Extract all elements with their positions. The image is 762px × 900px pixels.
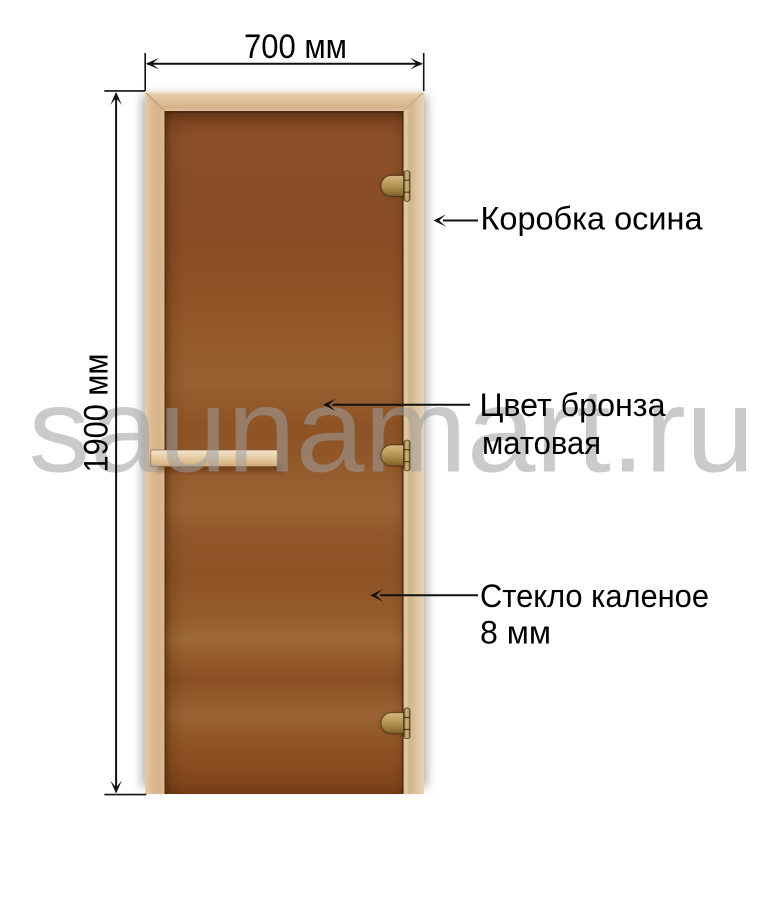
svg-text:8 мм: 8 мм [480,614,551,650]
svg-text:Стекло каленое: Стекло каленое [480,578,709,614]
svg-text:Коробка осина: Коробка осина [481,201,703,237]
svg-text:Цвет бронза: Цвет бронза [480,387,666,423]
svg-text:1900 мм: 1900 мм [78,354,116,473]
svg-text:700 мм: 700 мм [244,28,347,66]
svg-text:saunamart.ru: saunamart.ru [29,364,755,498]
svg-text:матовая: матовая [482,425,601,461]
